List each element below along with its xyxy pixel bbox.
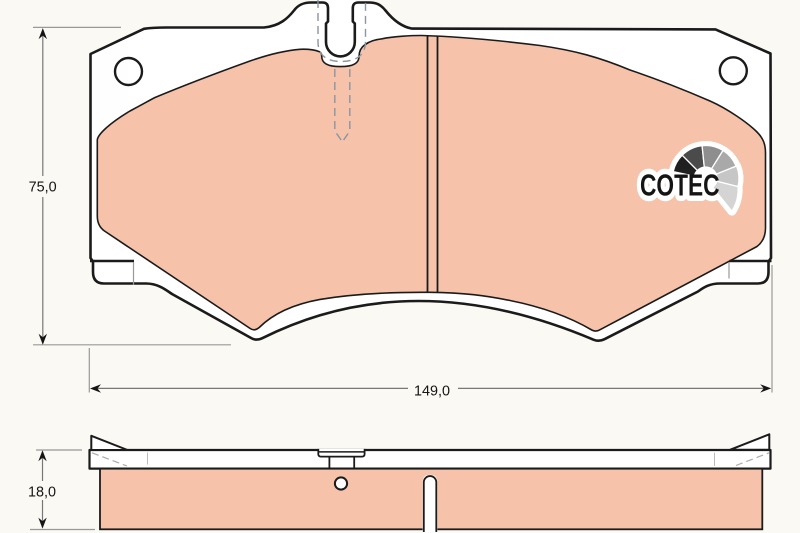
- svg-text:149,0: 149,0: [414, 383, 450, 399]
- svg-text:75,0: 75,0: [29, 180, 57, 196]
- svg-text:COTEC: COTEC: [640, 169, 720, 203]
- svg-text:18,0: 18,0: [28, 485, 56, 501]
